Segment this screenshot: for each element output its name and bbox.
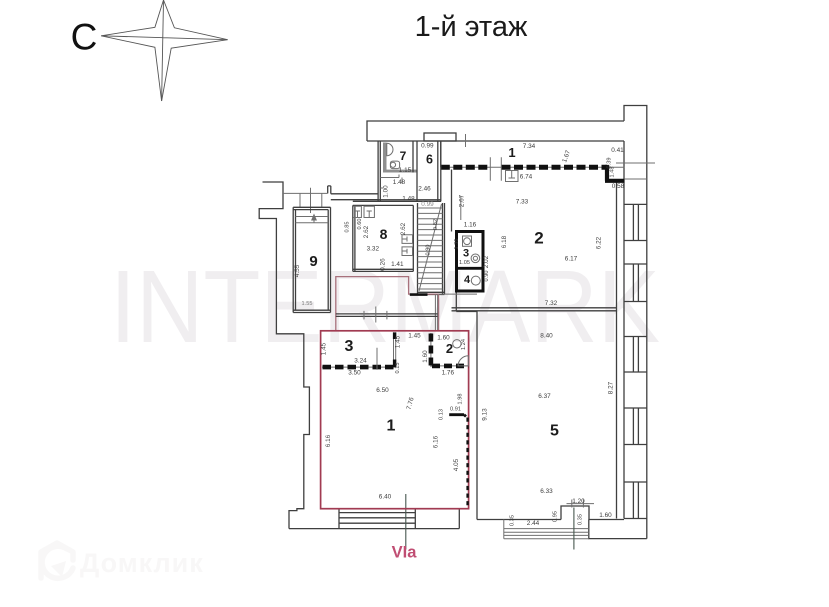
svg-text:1.60: 1.60 <box>422 350 429 363</box>
svg-text:0.99: 0.99 <box>421 201 434 208</box>
svg-text:2: 2 <box>534 229 543 248</box>
svg-text:7.76: 7.76 <box>406 396 416 410</box>
svg-text:3: 3 <box>345 338 354 355</box>
svg-text:2.44: 2.44 <box>527 520 540 527</box>
svg-text:0.15: 0.15 <box>395 363 401 374</box>
svg-text:1.24: 1.24 <box>461 339 467 350</box>
svg-text:1.41: 1.41 <box>391 261 404 268</box>
svg-text:1.05: 1.05 <box>459 260 470 266</box>
svg-text:2.67: 2.67 <box>459 194 466 207</box>
svg-text:4: 4 <box>464 274 471 286</box>
svg-text:2: 2 <box>446 341 453 356</box>
svg-text:4.55: 4.55 <box>294 264 301 277</box>
svg-text:6.37: 6.37 <box>538 393 551 400</box>
svg-text:1.55: 1.55 <box>302 301 313 307</box>
svg-text:0.35: 0.35 <box>510 515 516 526</box>
svg-text:2.62: 2.62 <box>363 225 370 238</box>
svg-text:2.62: 2.62 <box>400 222 407 235</box>
svg-text:0.95: 0.95 <box>553 511 559 522</box>
svg-text:6.18: 6.18 <box>501 235 508 248</box>
svg-text:4.05: 4.05 <box>453 458 460 471</box>
svg-text:3.50: 3.50 <box>348 370 361 377</box>
svg-text:8: 8 <box>380 226 388 242</box>
svg-text:6.22: 6.22 <box>596 236 603 249</box>
svg-text:0.41: 0.41 <box>611 147 624 154</box>
svg-text:1.48: 1.48 <box>402 196 415 203</box>
svg-text:5: 5 <box>550 423 559 440</box>
svg-text:1.60: 1.60 <box>437 335 450 342</box>
svg-text:1.48: 1.48 <box>393 179 406 186</box>
svg-text:0.35: 0.35 <box>578 514 584 525</box>
svg-text:9: 9 <box>309 253 317 270</box>
svg-text:0.13: 0.13 <box>438 409 444 420</box>
svg-text:1.00: 1.00 <box>383 185 390 198</box>
svg-text:2.02: 2.02 <box>483 255 490 268</box>
svg-text:6.50: 6.50 <box>376 387 389 394</box>
svg-text:6.33: 6.33 <box>540 488 553 495</box>
svg-text:8.40: 8.40 <box>540 333 553 340</box>
svg-text:2.46: 2.46 <box>418 186 431 193</box>
svg-text:0.58: 0.58 <box>612 183 625 190</box>
svg-text:1: 1 <box>387 418 396 435</box>
svg-text:3.32: 3.32 <box>367 246 380 253</box>
svg-text:1.45: 1.45 <box>394 335 401 348</box>
svg-text:0.91: 0.91 <box>450 407 461 413</box>
svg-text:1.76: 1.76 <box>442 370 455 377</box>
svg-text:1.20: 1.20 <box>572 498 585 505</box>
svg-text:6.40: 6.40 <box>379 494 392 501</box>
svg-text:0.26: 0.26 <box>380 258 387 271</box>
svg-text:0.90: 0.90 <box>484 271 490 282</box>
svg-text:1.45: 1.45 <box>320 342 327 355</box>
svg-text:1.35: 1.35 <box>454 239 460 250</box>
svg-text:6: 6 <box>426 153 433 167</box>
svg-text:0.60: 0.60 <box>357 219 363 230</box>
svg-text:6.17: 6.17 <box>565 256 578 263</box>
svg-text:1.48: 1.48 <box>610 167 616 178</box>
svg-text:1.16: 1.16 <box>464 222 477 229</box>
svg-text:7.32: 7.32 <box>545 300 558 307</box>
svg-text:3.24: 3.24 <box>354 358 367 365</box>
svg-text:7: 7 <box>400 149 407 163</box>
svg-text:7.33: 7.33 <box>516 199 529 206</box>
svg-text:0.90: 0.90 <box>426 245 432 256</box>
svg-text:С: С <box>71 17 98 58</box>
svg-text:0.82: 0.82 <box>433 219 439 230</box>
svg-text:0.85: 0.85 <box>344 222 350 233</box>
svg-text:1.15: 1.15 <box>399 167 412 174</box>
svg-text:6.16: 6.16 <box>325 434 332 447</box>
svg-text:Домклик: Домклик <box>80 548 204 578</box>
svg-text:1.45: 1.45 <box>408 333 421 340</box>
svg-text:1: 1 <box>508 145 515 160</box>
svg-text:1.60: 1.60 <box>599 512 612 519</box>
svg-text:6.16: 6.16 <box>433 435 440 448</box>
svg-text:9.13: 9.13 <box>482 408 489 421</box>
svg-text:1.67: 1.67 <box>561 149 572 164</box>
svg-text:6.74: 6.74 <box>520 174 533 181</box>
svg-text:8.27: 8.27 <box>608 381 615 394</box>
svg-text:3: 3 <box>463 248 469 260</box>
svg-text:1.98: 1.98 <box>458 394 464 405</box>
svg-text:1-й этаж: 1-й этаж <box>415 11 528 43</box>
svg-text:0.99: 0.99 <box>421 143 434 150</box>
svg-text:7.34: 7.34 <box>523 143 536 150</box>
svg-text:VIa: VIa <box>392 544 418 562</box>
